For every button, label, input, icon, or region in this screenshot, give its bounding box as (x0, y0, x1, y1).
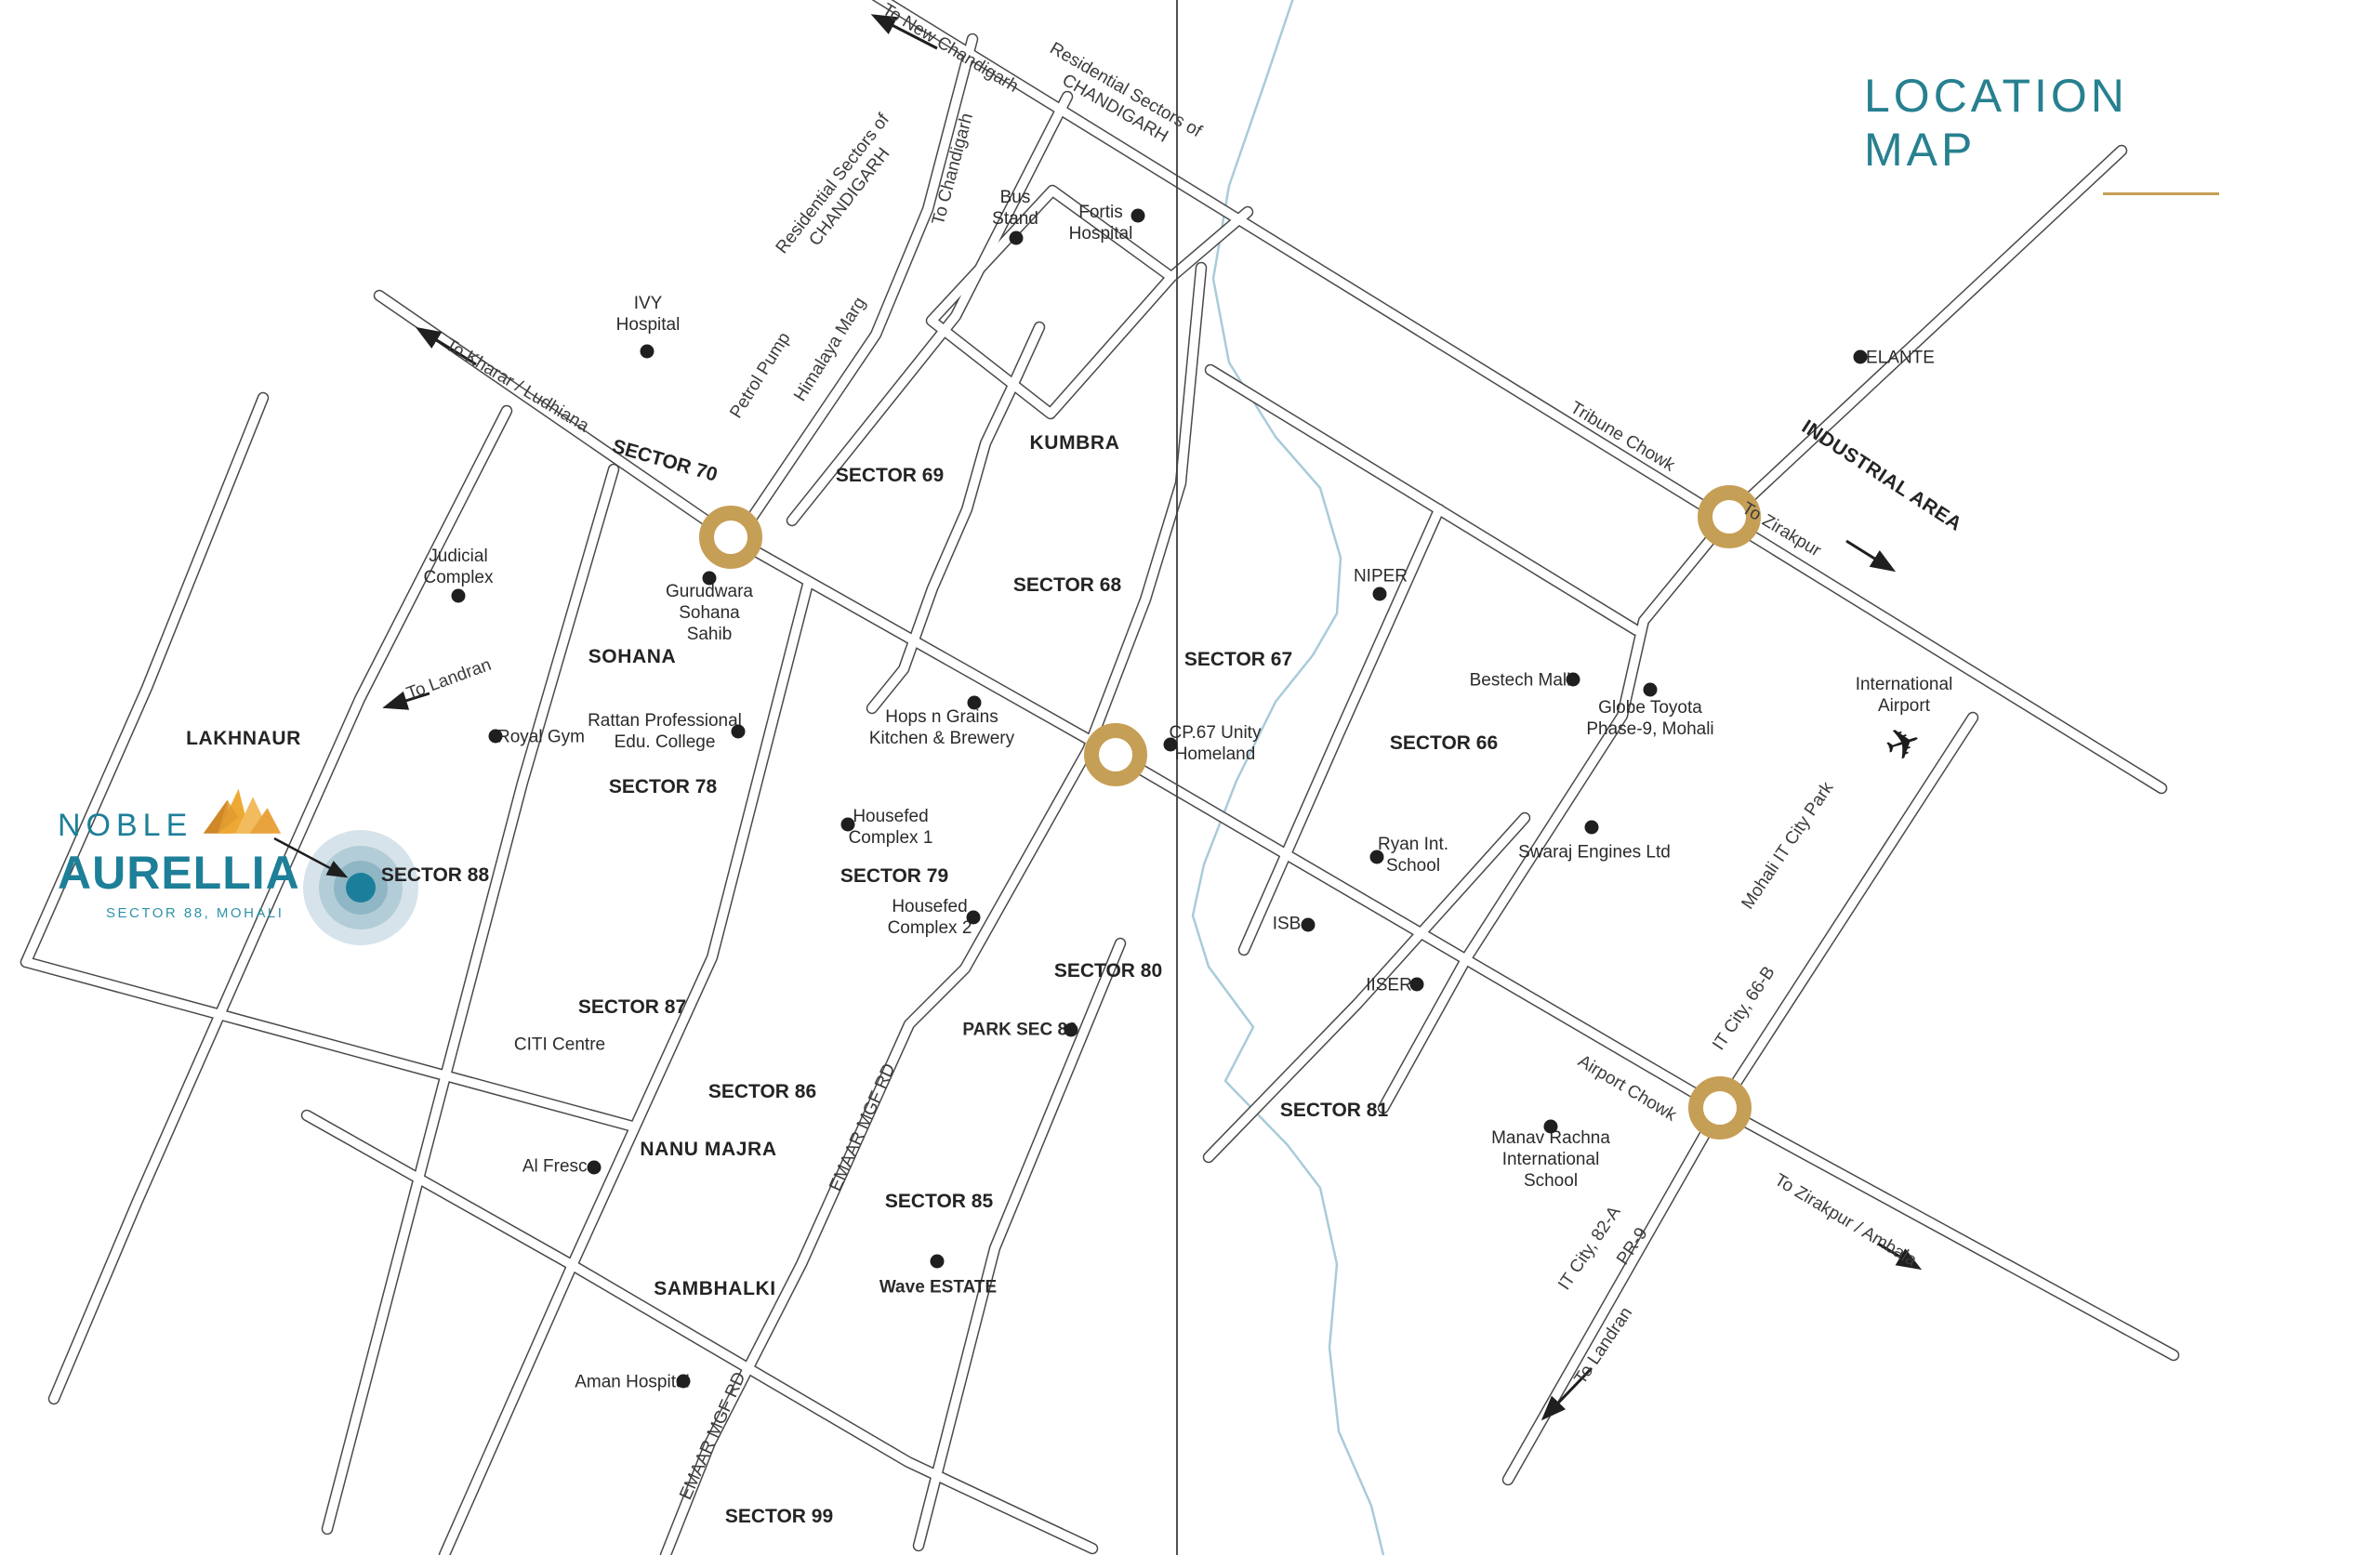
poi-label: Gurudwara Sohana Sahib (666, 581, 753, 646)
poi-label: Judicial Complex (424, 546, 494, 588)
poi-dot (1373, 587, 1387, 601)
poi-dot (452, 589, 466, 603)
poi-dot (732, 725, 746, 739)
poi-label: International Airport (1856, 674, 1953, 717)
poi-label: Globe Toyota Phase-9, Mohali (1586, 697, 1713, 740)
poi-dot (1302, 918, 1316, 932)
sector-label: SECTOR 81 (1280, 1099, 1388, 1123)
poi-dot (1410, 978, 1424, 992)
poi-dot (1010, 231, 1024, 245)
poi-label: Al Fresco (522, 1155, 597, 1177)
poi-label: IISER (1366, 974, 1412, 995)
poi-dot (968, 696, 982, 710)
poi-label: Bus Stand (992, 187, 1038, 230)
title-underline (2103, 192, 2219, 195)
brand-tagline: SECTOR 88, MOHALI (58, 905, 364, 921)
junction-roundabout (1091, 731, 1140, 779)
poi-label: Housefed Complex 1 (849, 806, 933, 849)
road-to-chandigarh (744, 39, 972, 530)
sector-label: SECTOR 78 (609, 775, 717, 799)
road-tribune-cross (1383, 151, 2122, 1108)
poi-dot (1164, 738, 1178, 752)
road-to-chandigarh-fill (744, 39, 972, 530)
road-himalaya-marg-fill (792, 97, 1067, 521)
poi-dot (1064, 1023, 1078, 1037)
area-label: NANU MAJRA (640, 1138, 776, 1162)
poi-label: Ryan Int. School (1378, 834, 1448, 876)
page-title: LOCATION MAP (1864, 69, 2208, 177)
brand-logo: NOBLE AURELLIA SECTOR 88, MOHALI (58, 786, 364, 921)
poi-dot (1567, 673, 1580, 687)
poi-dot (677, 1375, 691, 1389)
area-label: KUMBRA (1030, 431, 1120, 455)
poi-dot (703, 572, 717, 586)
brand-name-noble: NOBLE (58, 808, 192, 844)
poi-dot (1544, 1120, 1558, 1134)
poi-dot (1644, 683, 1658, 697)
poi-label: ELANTE (1866, 347, 1935, 368)
poi-label: Fortis Hospital (1069, 202, 1133, 244)
sector-label: SECTOR 87 (578, 995, 686, 1020)
poi-dot (1370, 850, 1384, 864)
sector-label: SECTOR 68 (1013, 573, 1121, 598)
sector-label: SECTOR 80 (1054, 959, 1162, 983)
poi-label: PARK SEC 80 (962, 1019, 1077, 1040)
sector-label: SECTOR 86 (708, 1080, 816, 1104)
road-himalaya-marg (792, 97, 1067, 521)
poi-label: CP.67 Unity Homeland (1170, 722, 1262, 765)
poi-label: Bestech Mall (1470, 669, 1571, 691)
sector-label: SECTOR 69 (836, 464, 944, 488)
poi-label: CITI Centre (514, 1034, 605, 1055)
poi-dot (489, 730, 503, 744)
junction-roundabout (707, 513, 755, 561)
poi-label: IVY Hospital (616, 293, 681, 336)
area-label: LAKHNAUR (186, 727, 301, 751)
area-label: SOHANA (588, 645, 677, 669)
poi-dot (841, 818, 855, 832)
sector-label: SECTOR 79 (840, 864, 948, 889)
road-tribune-cross-fill (1383, 151, 2122, 1108)
poi-dot (641, 345, 654, 359)
poi-label: Manav Rachna International School (1491, 1127, 1610, 1193)
sector-label: SECTOR 85 (885, 1190, 993, 1214)
sector-label: SECTOR 66 (1390, 731, 1498, 756)
poi-dot (1585, 821, 1599, 835)
poi-label: Rattan Professional Edu. College (588, 710, 742, 753)
poi-dot (588, 1161, 602, 1175)
brand-name-aurellia: AURELLIA (58, 846, 364, 900)
poi-dot (931, 1255, 945, 1269)
poi-label: Housefed Complex 2 (888, 896, 972, 939)
poi-dot (967, 911, 981, 925)
poi-label: Hops n Grains Kitchen & Brewery (869, 706, 1014, 749)
area-label: SAMBHALKI (654, 1277, 775, 1301)
location-map-page: LOCATION MAP NOBLE AURELLIA SECTOR 88, M… (0, 0, 2380, 1555)
sector-label: SECTOR 67 (1184, 648, 1292, 672)
poi-label: Wave ESTATE (879, 1276, 997, 1298)
poi-label: Royal Gym (497, 726, 585, 747)
poi-dot (1131, 209, 1145, 223)
sector-label: SECTOR 99 (725, 1505, 833, 1529)
crown-icon (202, 786, 282, 844)
poi-label: Aman Hospital (575, 1371, 690, 1392)
junction-roundabout (1696, 1084, 1744, 1132)
poi-label: Swaraj Engines Ltd (1518, 841, 1671, 863)
poi-dot (1854, 350, 1868, 364)
map-canvas (0, 0, 2380, 1555)
direction-arrow (1846, 541, 1891, 569)
poi-label: NIPER (1354, 565, 1408, 586)
sector-label: SECTOR 88 (381, 863, 489, 888)
poi-label: ISB (1273, 913, 1302, 934)
